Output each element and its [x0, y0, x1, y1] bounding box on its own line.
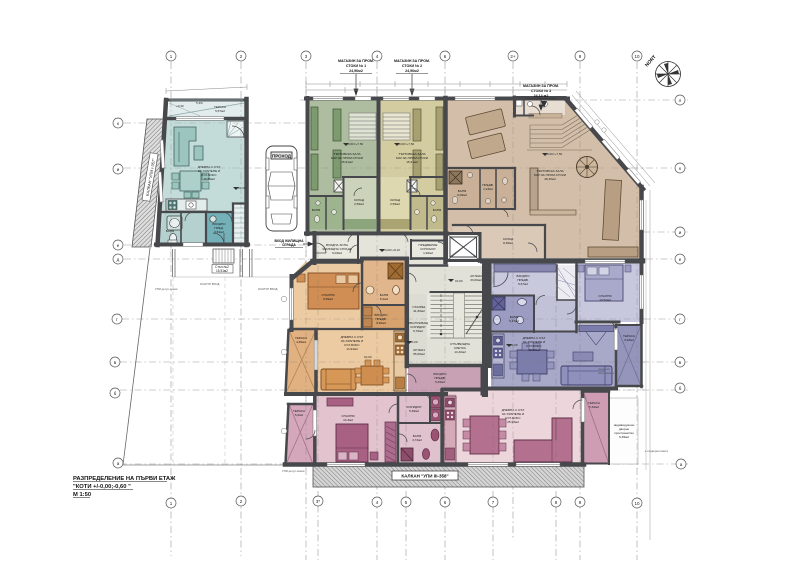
svg-text:15,91м2: 15,91м2: [406, 160, 418, 164]
svg-text:5,39м2: 5,39м2: [409, 409, 419, 413]
svg-text:9,59м2: 9,59м2: [323, 297, 333, 301]
svg-text:±0,00: ±0,00: [410, 340, 418, 344]
svg-text:65,66м2: 65,66м2: [413, 352, 425, 356]
svg-text:25,93м2: 25,93м2: [507, 420, 519, 424]
svg-text:РАЗПРЕДЕЛЕНИЕ НА ПЪРВИ ЕТАЖ: РАЗПРЕДЕЛЕНИЕ НА ПЪРВИ ЕТАЖ: [73, 476, 176, 482]
svg-text:13,52м2: 13,52м2: [599, 298, 611, 302]
svg-text:5,76м2: 5,76м2: [413, 329, 423, 333]
svg-text:СТОКИ № 3: СТОКИ № 3: [531, 89, 551, 93]
svg-text:МАГАЗИН ЗА ПРОМ.: МАГАЗИН ЗА ПРОМ.: [338, 59, 374, 63]
svg-text:УПИ-регул.линия: УПИ-регул.линия: [155, 287, 178, 291]
svg-text:5,32м2: 5,32м2: [589, 405, 599, 409]
svg-text:24,14 м2: 24,14 м2: [534, 94, 549, 98]
svg-text:±0,00: ±0,00: [364, 355, 372, 359]
svg-text:33,60м2: 33,60м2: [470, 278, 482, 282]
svg-text:л: л: [679, 98, 682, 103]
svg-text:СТОКИ № 2: СТОКИ № 2: [402, 64, 422, 68]
svg-text:КАЛКАН "УПИ III-358": КАЛКАН "УПИ III-358": [401, 474, 448, 479]
svg-text:13,3м2: 13,3м2: [343, 418, 353, 422]
svg-text:5,47м2: 5,47м2: [509, 319, 519, 323]
svg-text:1,23м2: 1,23м2: [483, 187, 493, 191]
svg-text:15,55м2: 15,55м2: [203, 177, 215, 181]
svg-text:24,96м2: 24,96м2: [405, 69, 419, 73]
svg-text:КОНТУР ВХОД: КОНТУР ВХОД: [258, 287, 278, 291]
svg-text:к.от.дворни имоти: к.от.дворни имоти: [645, 449, 669, 453]
svg-text:2+: 2+: [510, 54, 516, 59]
svg-text:10: 10: [634, 54, 640, 59]
svg-text:24,96м2: 24,96м2: [349, 69, 363, 73]
svg-text:застрояване: застрояване: [598, 371, 615, 375]
svg-text:3*: 3*: [316, 499, 321, 504]
svg-text:б: б: [679, 386, 682, 391]
svg-text:3,96м2: 3,96м2: [376, 321, 386, 325]
svg-text:ПРОХОД: ПРОХОД: [272, 153, 292, 158]
svg-text:СТОКИ № 1: СТОКИ № 1: [346, 64, 366, 68]
svg-text:6,0м2: 6,0м2: [380, 297, 388, 301]
svg-text:10: 10: [634, 501, 640, 506]
svg-text:3,54м2: 3,54м2: [214, 230, 224, 234]
svg-text:±0,00: ±0,00: [455, 279, 463, 283]
svg-text:"КОТИ +/-0,00;-0,60 ": "КОТИ +/-0,00;-0,60 ": [73, 484, 131, 490]
svg-text:19,25м2: 19,25м2: [528, 348, 540, 352]
svg-text:5,67м2: 5,67м2: [518, 282, 528, 286]
svg-text:3,93м2: 3,93м2: [624, 338, 634, 342]
svg-text:4,74м2: 4,74м2: [412, 438, 422, 442]
svg-text:БАНЯ: БАНЯ: [166, 229, 175, 233]
svg-text:8,39м2: 8,39м2: [503, 241, 513, 245]
svg-text:5,0м2: 5,0м2: [295, 413, 303, 417]
svg-text:6,03м2: 6,03м2: [332, 251, 342, 255]
svg-text:БАНЯ: БАНЯ: [433, 208, 442, 212]
svg-text:к: к: [679, 166, 681, 171]
svg-text:5,3%: 5,3%: [196, 101, 203, 105]
svg-text:6,09м2: 6,09м2: [457, 193, 467, 197]
svg-text:БАНЯ: БАНЯ: [312, 208, 321, 212]
svg-text:4,89м2: 4,89м2: [296, 340, 306, 344]
svg-text:41,86м2: 41,86м2: [413, 309, 425, 313]
svg-text:КОНТУР ВХОД: КОНТУР ВХОД: [200, 282, 220, 286]
svg-text:±0,00: ±0,00: [238, 186, 246, 190]
svg-text:МАГАЗИН ЗА ПРОМ.: МАГАЗИН ЗА ПРОМ.: [394, 59, 430, 63]
svg-text:-0,60=+7,50: -0,60=+7,50: [347, 142, 364, 146]
svg-text:2,59м2: 2,59м2: [354, 202, 364, 206]
svg-text:2,59м2: 2,59м2: [390, 202, 400, 206]
svg-text:к: к: [117, 121, 119, 126]
svg-text:15,91м2: 15,91м2: [341, 160, 353, 164]
svg-text:±0,00: ±0,00: [510, 343, 518, 347]
svg-text:+0,00=+8,10: +0,00=+8,10: [383, 248, 400, 252]
svg-text:М 1:50: М 1:50: [73, 492, 91, 498]
svg-text:МАГАЗИН ЗА ПРОМ.: МАГАЗИН ЗА ПРОМ.: [523, 84, 559, 88]
svg-text:5,45м2: 5,45м2: [435, 380, 445, 384]
svg-text:5,57м2: 5,57м2: [215, 109, 225, 113]
svg-text:УПИ-регул.линия: УПИ-регул.линия: [282, 469, 305, 473]
svg-text:6,39м2: 6,39м2: [619, 435, 629, 439]
svg-text:б: б: [114, 391, 117, 396]
svg-text:13,94м2: 13,94м2: [346, 347, 358, 351]
svg-text:-0,60=+7,50: -0,60=+7,50: [398, 142, 415, 146]
svg-text:48,45м2: 48,45м2: [544, 177, 556, 181]
svg-text:1,96м2: 1,96м2: [423, 251, 433, 255]
svg-text:-0,60=+7,50: -0,60=+7,50: [546, 152, 563, 156]
svg-text:СГРАДА: СГРАДА: [282, 243, 296, 247]
svg-text:д: д: [117, 257, 120, 262]
svg-text:15,51м2: 15,51м2: [216, 269, 228, 273]
svg-text:14,40м2: 14,40м2: [454, 350, 466, 354]
svg-text:+0,30: +0,30: [176, 104, 184, 108]
